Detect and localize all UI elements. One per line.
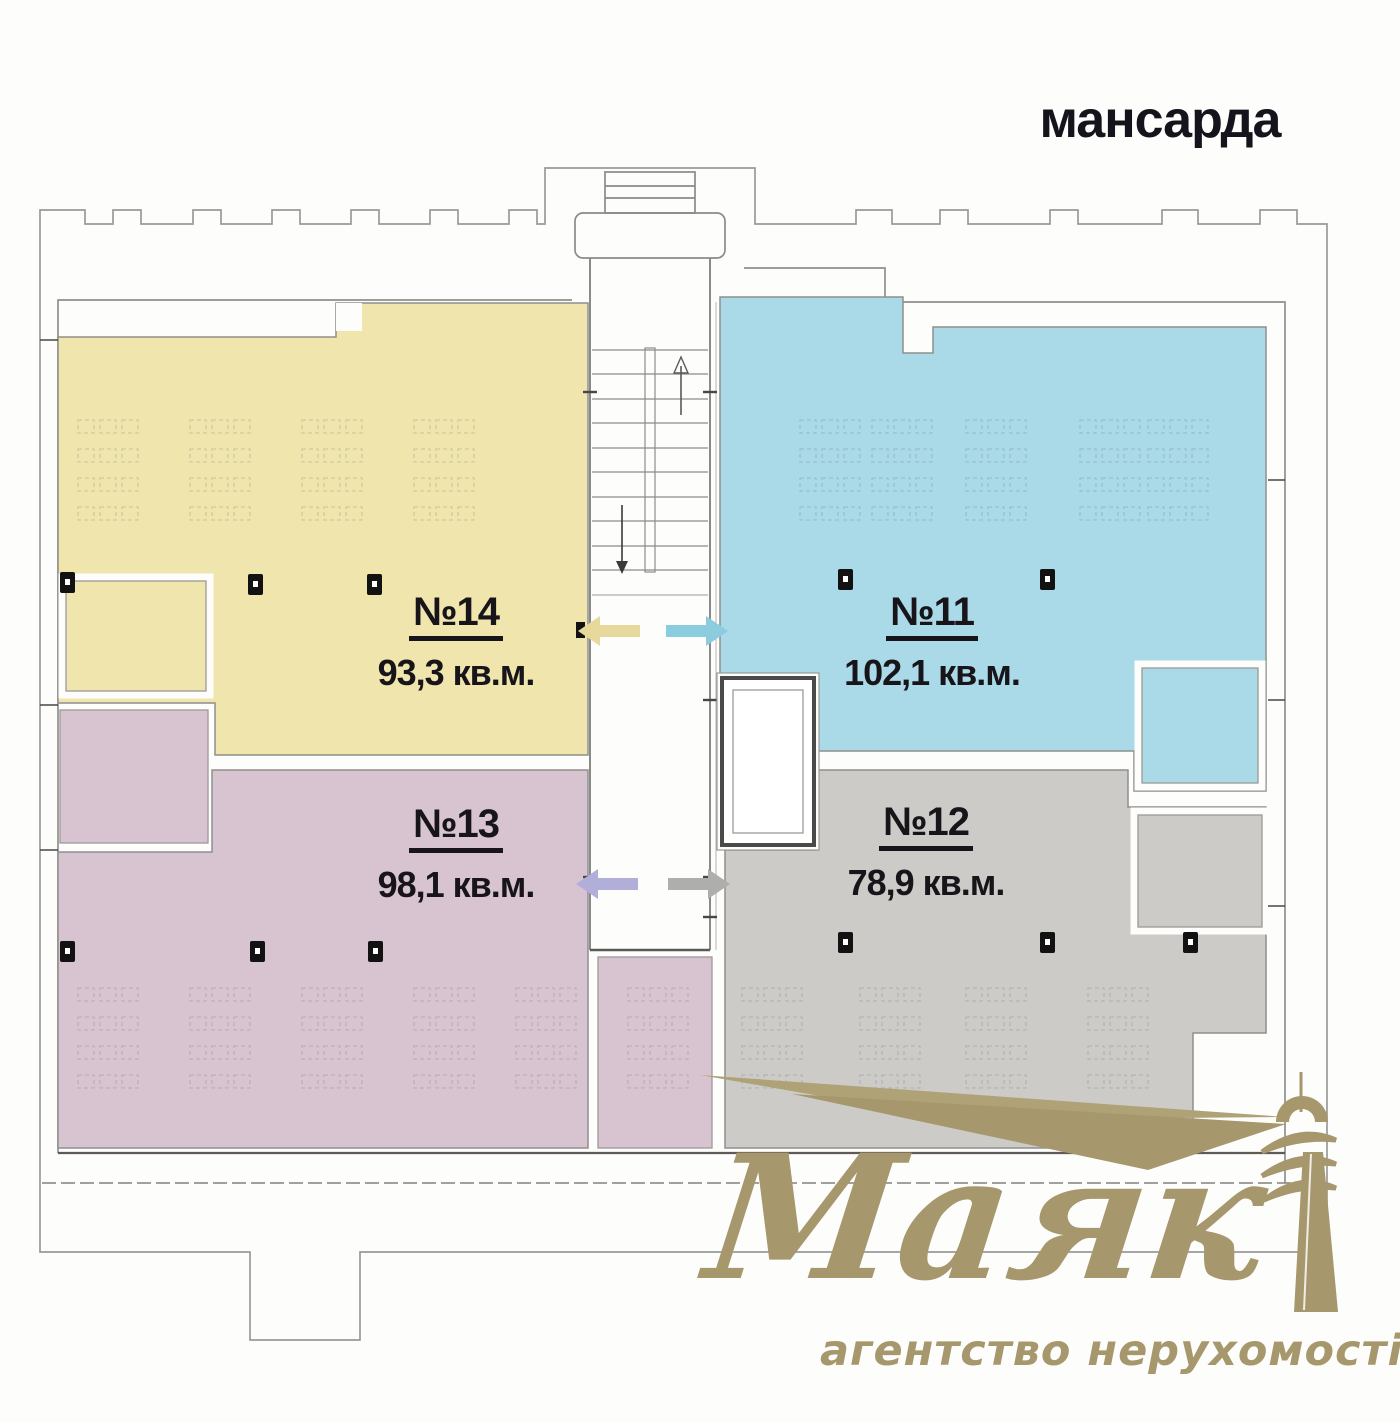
unit-11-area: 102,1 кв.м. [812, 655, 1052, 691]
unit-11-number: №11 [886, 592, 978, 641]
stair-corridor [590, 258, 716, 950]
unit-13-number: №13 [409, 804, 503, 853]
unit-11-arrow-icon [666, 616, 728, 646]
floor-title: мансарда [1030, 90, 1290, 150]
unit-13-region [58, 710, 712, 1148]
unit-14-number: №14 [409, 592, 503, 641]
unit-13-label: №13 98,1 кв.м. [346, 804, 566, 903]
unit-12-area: 78,9 кв.м. [816, 865, 1036, 901]
unit-12-number: №12 [879, 802, 973, 851]
unit-12-label: №12 78,9 кв.м. [816, 802, 1036, 901]
unit-13-area: 98,1 кв.м. [346, 867, 566, 903]
unit-14-area: 93,3 кв.м. [346, 655, 566, 691]
stairwell-head [575, 172, 725, 258]
logo-tagline: агентство нерухомості [820, 1326, 1355, 1376]
staircase [592, 348, 708, 595]
elevator-shaft [717, 673, 819, 850]
stair-direction-arrows [616, 357, 688, 574]
unit-12-arrow-icon [668, 869, 730, 899]
unit-14-label: №14 93,3 кв.м. [346, 592, 566, 691]
floorplan-page: мансарда №14 93,3 кв.м. №11 102,1 кв.м. … [0, 0, 1400, 1422]
unit-11-label: №11 102,1 кв.м. [812, 592, 1052, 691]
logo-wordmark: Маяк [642, 1128, 1328, 1338]
unit-arrows [576, 616, 730, 899]
